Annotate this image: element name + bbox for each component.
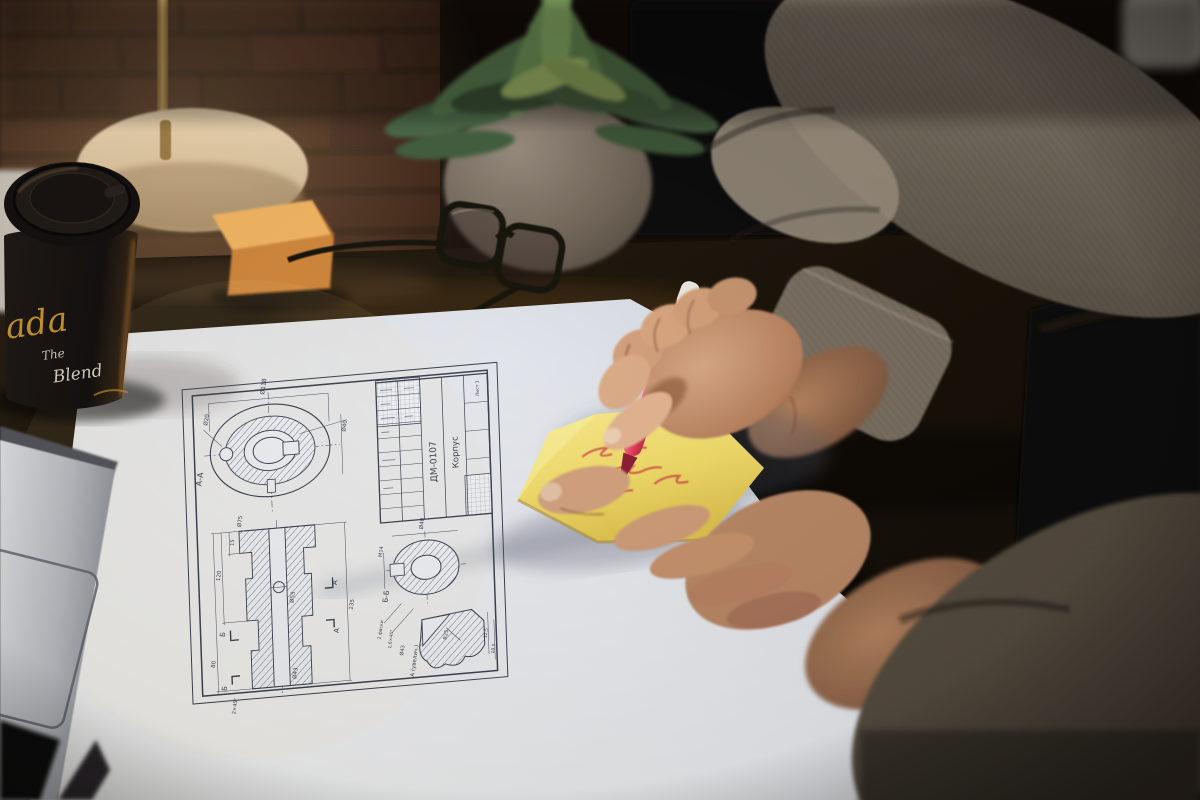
scene-canvas: Ø118 Ø20 Ø40 А-А 15 120 80	[0, 0, 1200, 800]
photo-scene: Ø118 Ø20 Ø40 А-А 15 120 80	[0, 0, 1200, 800]
vignette	[0, 0, 1200, 800]
